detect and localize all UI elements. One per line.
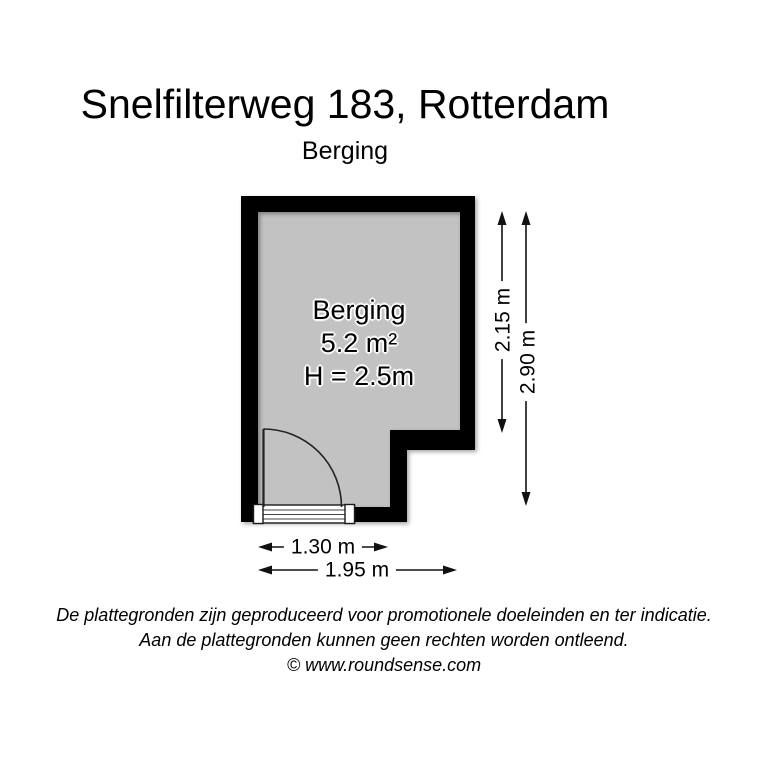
room-label: Berging 5.2 m² H = 2.5m bbox=[259, 294, 459, 393]
disclaimer-line-2: Aan de plattegronden kunnen geen rechten… bbox=[0, 628, 768, 653]
dimension-label-vertical-inner: 2.15 m bbox=[491, 281, 516, 359]
room-name: Berging bbox=[259, 294, 459, 327]
dimension-label-horizontal-inner: 1.30 m bbox=[284, 535, 362, 560]
dimension-label-vertical-outer: 2.90 m bbox=[516, 323, 541, 401]
disclaimer-line-1: De plattegronden zijn geproduceerd voor … bbox=[0, 603, 768, 628]
room-ceiling-height: H = 2.5m bbox=[259, 360, 459, 393]
door-jamb-right bbox=[345, 505, 355, 524]
door-threshold bbox=[254, 505, 355, 524]
dimension-label-horizontal-outer: 1.95 m bbox=[318, 558, 396, 583]
floorplan-page: Snelfilterweg 183, Rotterdam Berging bbox=[0, 0, 768, 768]
credit-line: © www.roundsense.com bbox=[0, 653, 768, 678]
room-area: 5.2 m² bbox=[259, 327, 459, 360]
door-jamb-left bbox=[254, 505, 264, 524]
footer: De plattegronden zijn geproduceerd voor … bbox=[0, 603, 768, 678]
